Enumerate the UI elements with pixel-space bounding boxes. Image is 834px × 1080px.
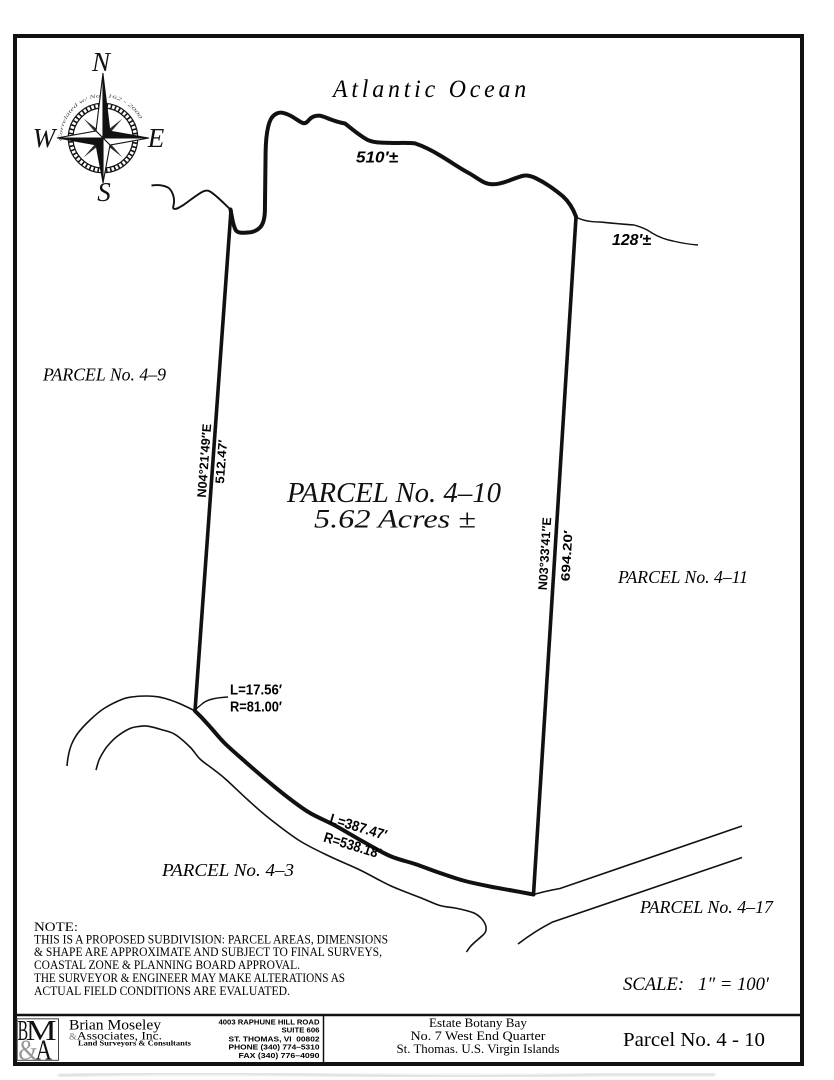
svg-text:FAX (340) 776–4090: FAX (340) 776–4090 xyxy=(239,1051,320,1060)
svg-text:& SHAPE ARE APPROXIMATE AND SU: & SHAPE ARE APPROXIMATE AND SUBJECT TO F… xyxy=(34,945,382,959)
svg-text:No. 7 West End Quarter: No. 7 West End Quarter xyxy=(411,1029,547,1043)
svg-text:Parcel No. 4 - 10: Parcel No. 4 - 10 xyxy=(623,1029,765,1051)
svg-text:SCALE: 1″ = 100′: SCALE: 1″ = 100′ xyxy=(623,974,770,995)
svg-text:PARCEL No. 4–11: PARCEL No. 4–11 xyxy=(617,567,748,587)
svg-text:SUITE 606: SUITE 606 xyxy=(282,1026,320,1035)
svg-text:COASTAL ZONE & PLANNING BOARD: COASTAL ZONE & PLANNING BOARD APPROVAL. xyxy=(34,958,300,972)
svg-text:R=81.00′: R=81.00′ xyxy=(230,700,282,716)
svg-text:S: S xyxy=(97,177,111,207)
svg-text:ACTUAL FIELD CONDITIONS ARE EV: ACTUAL FIELD CONDITIONS ARE EVALUATED. xyxy=(34,984,290,998)
svg-text:PARCEL No. 4–3: PARCEL No. 4–3 xyxy=(161,860,294,880)
svg-text:A: A xyxy=(36,1035,53,1066)
svg-text:E: E xyxy=(147,123,165,153)
svg-text:St. Thomas. U.S. Virgin Island: St. Thomas. U.S. Virgin Islands xyxy=(397,1042,560,1056)
svg-text:W: W xyxy=(33,123,58,153)
svg-text:PARCEL No. 4–9: PARCEL No. 4–9 xyxy=(42,365,166,385)
svg-text:128′±: 128′± xyxy=(612,232,651,249)
svg-text:N: N xyxy=(91,47,112,77)
svg-text:PARCEL No. 4–17: PARCEL No. 4–17 xyxy=(639,897,774,917)
svg-text:Land Surveyors & Consultants: Land Surveyors & Consultants xyxy=(78,1041,191,1048)
svg-text:L=17.56′: L=17.56′ xyxy=(230,683,282,699)
svg-text:510′±: 510′± xyxy=(356,150,399,167)
svg-text:THE SURVEYOR & ENGINEER MAY MA: THE SURVEYOR & ENGINEER MAY MAKE ALTERAT… xyxy=(34,971,345,985)
svg-text:5.62 Acres ±: 5.62 Acres ± xyxy=(314,505,476,534)
svg-text:Estate Botany Bay: Estate Botany Bay xyxy=(429,1016,528,1030)
svg-text:Atlantic Ocean: Atlantic Ocean xyxy=(331,76,530,103)
